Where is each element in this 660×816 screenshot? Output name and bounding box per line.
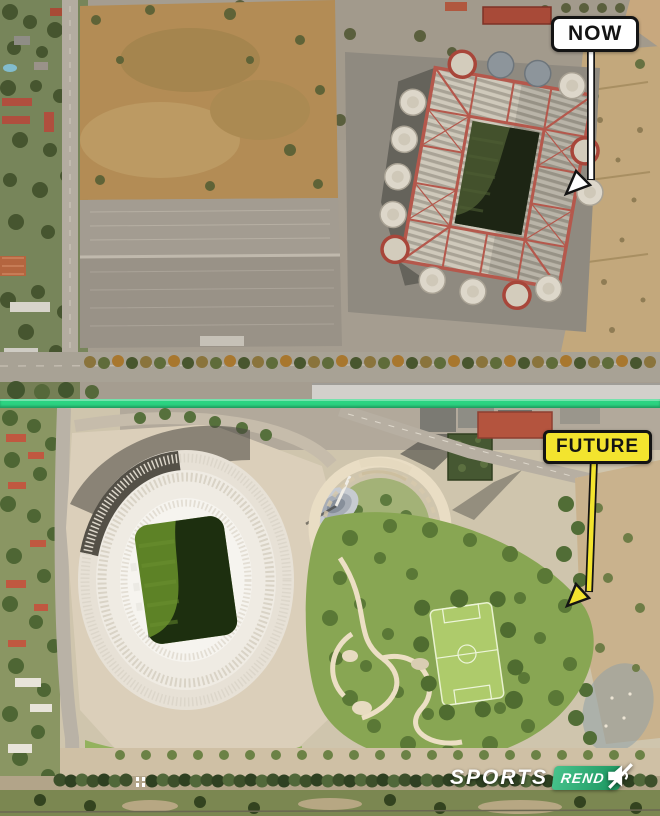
comparison-image: NOW FUTURE SPORTS REND [0, 0, 660, 816]
residential-west-render [0, 408, 61, 816]
watermark: SPORTS REND [450, 763, 635, 793]
west-road [62, 0, 78, 372]
future-render-image [0, 408, 660, 816]
red-roof-building-small [445, 2, 467, 11]
new-stadium [78, 450, 294, 710]
now-label: NOW [551, 16, 639, 52]
now-aerial-photo [0, 0, 660, 400]
parking-lots [80, 198, 342, 348]
future-label: FUTURE [543, 430, 652, 464]
divider-bar [0, 399, 660, 408]
dirt-field [80, 0, 338, 200]
white-building [312, 383, 660, 400]
future-panel [0, 408, 660, 816]
watermark-brand: SPORTS [450, 766, 548, 790]
tree-lined-avenue [0, 352, 660, 382]
now-panel [0, 0, 660, 400]
red-roof-building-render [478, 412, 552, 438]
muted-speaker-icon[interactable] [605, 762, 635, 795]
red-roof-building [483, 7, 551, 24]
